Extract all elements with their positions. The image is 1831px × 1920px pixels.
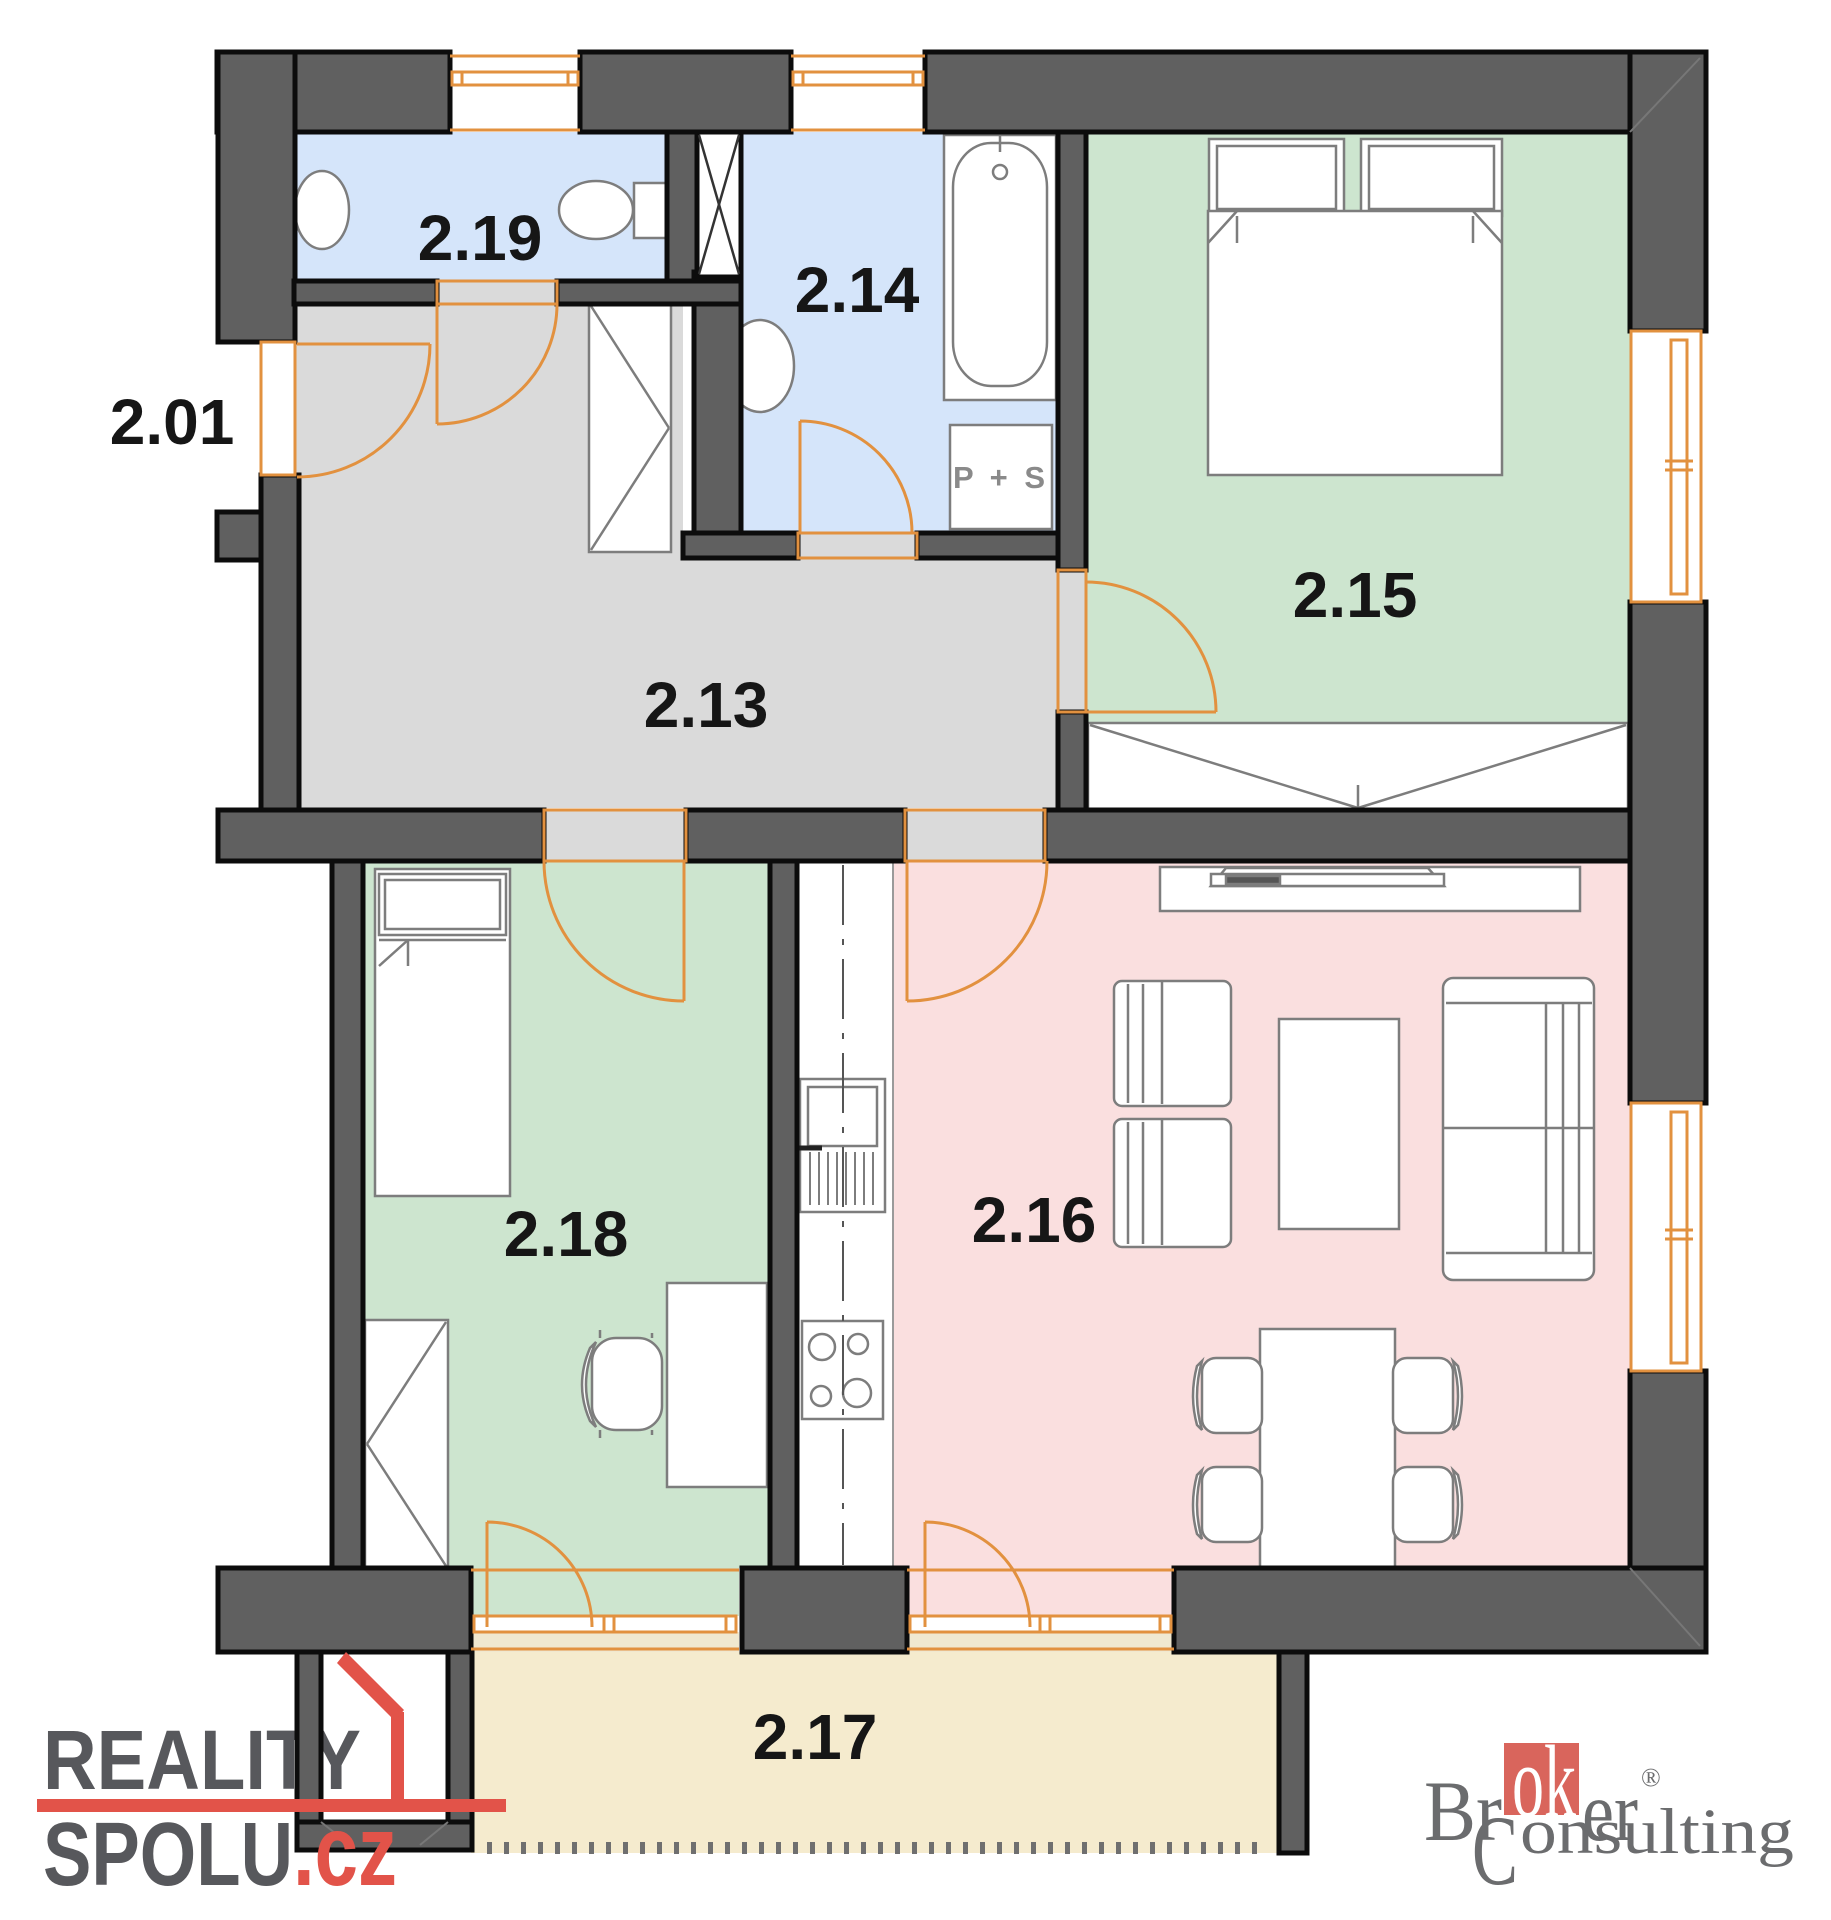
- svg-text:2.17: 2.17: [753, 1701, 878, 1773]
- svg-text:2.14: 2.14: [795, 254, 920, 326]
- svg-text:2.19: 2.19: [418, 202, 543, 274]
- svg-text:2.13: 2.13: [644, 669, 769, 741]
- svg-text:2.16: 2.16: [972, 1184, 1097, 1256]
- svg-text:2.15: 2.15: [1293, 559, 1418, 631]
- svg-text:2.18: 2.18: [504, 1198, 629, 1270]
- svg-text:P + S: P + S: [953, 460, 1049, 495]
- svg-text:®: ®: [1641, 1763, 1661, 1792]
- svg-text:2.01: 2.01: [110, 386, 235, 458]
- svg-text:.cz: .cz: [293, 1795, 397, 1907]
- svg-text:onsulting: onsulting: [1520, 1796, 1794, 1868]
- svg-text:SPOLU: SPOLU: [43, 1805, 293, 1905]
- svg-text:C: C: [1472, 1795, 1518, 1906]
